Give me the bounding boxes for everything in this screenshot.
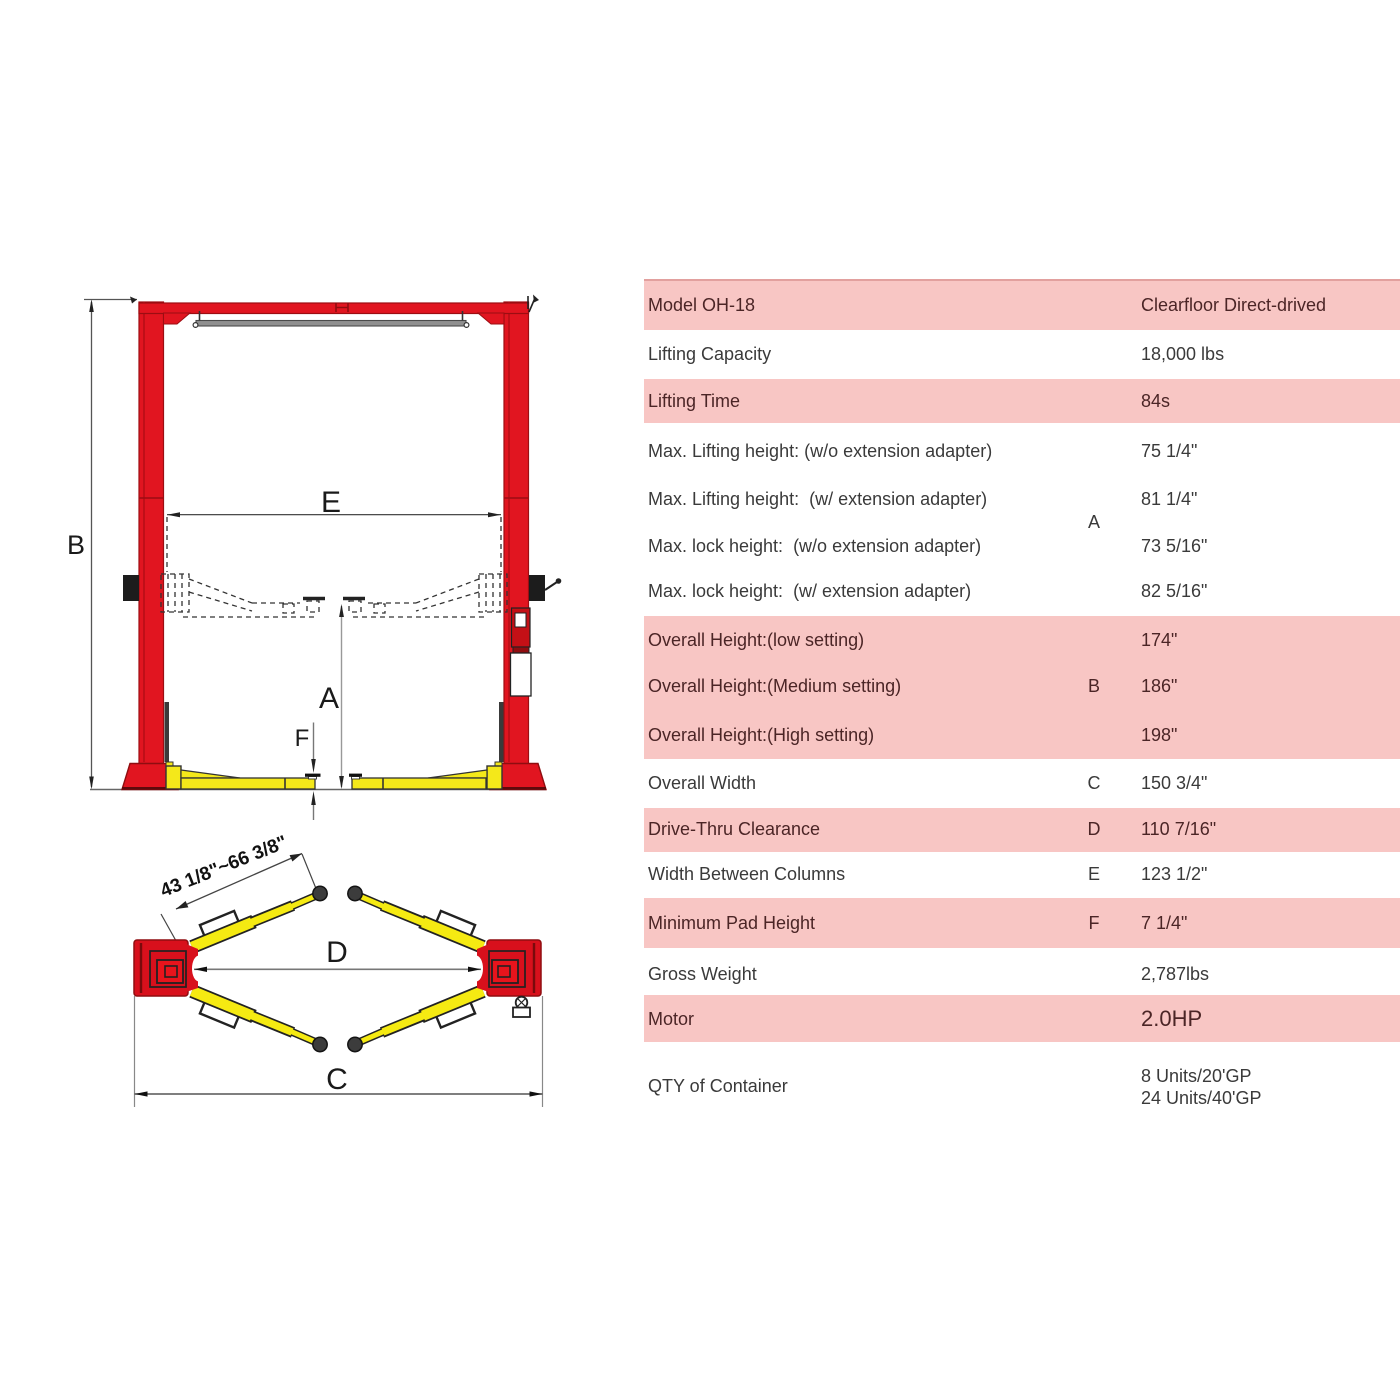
svg-text:A: A [319,682,339,715]
svg-text:E: E [321,486,341,519]
svg-text:C: C [326,1063,348,1096]
svg-text:F: F [295,725,310,752]
svg-text:D: D [326,936,348,969]
svg-text:B: B [67,530,85,560]
